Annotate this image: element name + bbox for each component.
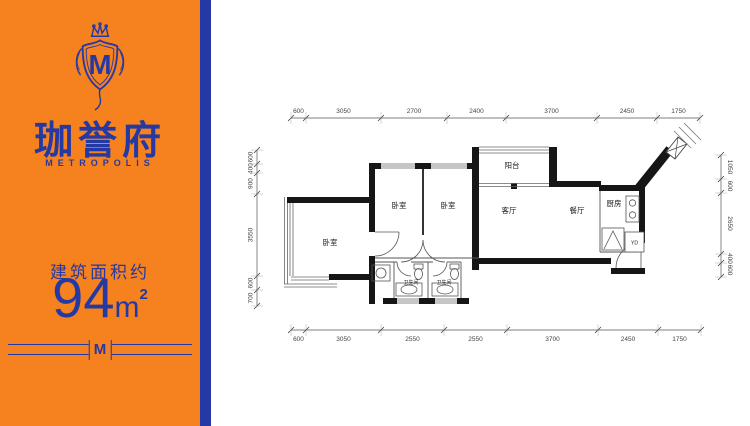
dim-left-3: 3550: [248, 227, 255, 242]
dim-top-6: 1750: [671, 108, 686, 115]
dim-right-3: 400: [726, 253, 733, 264]
dim-left-1: 400: [248, 163, 255, 174]
dim-bottom-5: 2450: [621, 336, 636, 343]
brand-crest-icon: M: [66, 22, 134, 114]
area-value: 94m2: [0, 270, 200, 326]
dim-top-1: 3050: [336, 108, 351, 115]
walls: [287, 147, 645, 304]
room-label-bedroom-2: 卧室: [441, 200, 456, 210]
dim-bottom-2: 2550: [405, 336, 420, 343]
room-label-bedroom-left: 卧室: [323, 237, 338, 247]
area-superscript: 2: [139, 286, 147, 303]
divider-stripe: [200, 0, 211, 426]
room-label-living: 客厅: [502, 205, 517, 215]
dim-top-2: 2700: [407, 108, 422, 115]
brand-divider: M: [8, 340, 192, 360]
room-label-dining: 餐厅: [570, 206, 585, 215]
dim-right-4: 600: [726, 265, 733, 276]
divider-monogram: M: [89, 340, 112, 360]
dimension-top: 600 3050 2700 2400 3700 2450 1750: [288, 108, 703, 124]
crest-letter: M: [89, 49, 112, 80]
dim-top-5: 2450: [620, 108, 635, 115]
dim-bottom-1: 3050: [336, 336, 351, 343]
floor-plan-drawing: 卧室 卧室 卧室 阳台 客厅 餐厅 厨房 卫生间 卫生间 YD: [211, 0, 750, 426]
dimension-left: 600 400 900 3550 600 700: [248, 147, 264, 309]
room-label-bath-2: 卫生间: [436, 279, 451, 286]
dim-left-5: 700: [248, 292, 255, 303]
room-label-flue: YD: [631, 241, 638, 247]
room-label-kitchen: 厨房: [607, 198, 622, 208]
dim-left-2: 900: [248, 178, 255, 189]
dim-right-2: 2650: [726, 216, 733, 231]
dim-right-0: 1050: [726, 160, 733, 175]
dim-top-3: 2400: [469, 108, 484, 115]
dim-bottom-3: 2550: [468, 336, 483, 343]
dim-right-1: 600: [726, 181, 733, 192]
dim-bottom-6: 1750: [672, 336, 687, 343]
dimension-right: 1050 600 2650 400 600: [715, 152, 733, 280]
flyer: M 珈誉府 METROPOLIS 建筑面积约 94m2 M: [0, 0, 750, 426]
shaft-hatch: [638, 123, 701, 189]
dimension-bottom: 600 3050 2550 2550 3700 2450 1750: [288, 324, 704, 343]
dim-left-0: 600: [248, 151, 255, 162]
dim-left-4: 600: [248, 277, 255, 288]
brand-panel: M 珈誉府 METROPOLIS 建筑面积约 94m2 M: [0, 0, 200, 426]
dim-top-4: 3700: [544, 108, 559, 115]
dim-top-0: 600: [293, 108, 304, 115]
dim-bottom-4: 3700: [545, 336, 560, 343]
brand-name-en: METROPOLIS: [0, 158, 200, 168]
room-label-bedroom-1: 卧室: [392, 200, 407, 210]
dim-bottom-0: 600: [293, 336, 304, 343]
room-label-balcony: 阳台: [505, 160, 520, 170]
room-label-bath-1: 卫生间: [403, 279, 418, 286]
area-number: 94: [52, 266, 114, 329]
floor-plan: 卧室 卧室 卧室 阳台 客厅 餐厅 厨房 卫生间 卫生间 YD: [211, 0, 750, 426]
area-unit: m: [114, 291, 139, 324]
